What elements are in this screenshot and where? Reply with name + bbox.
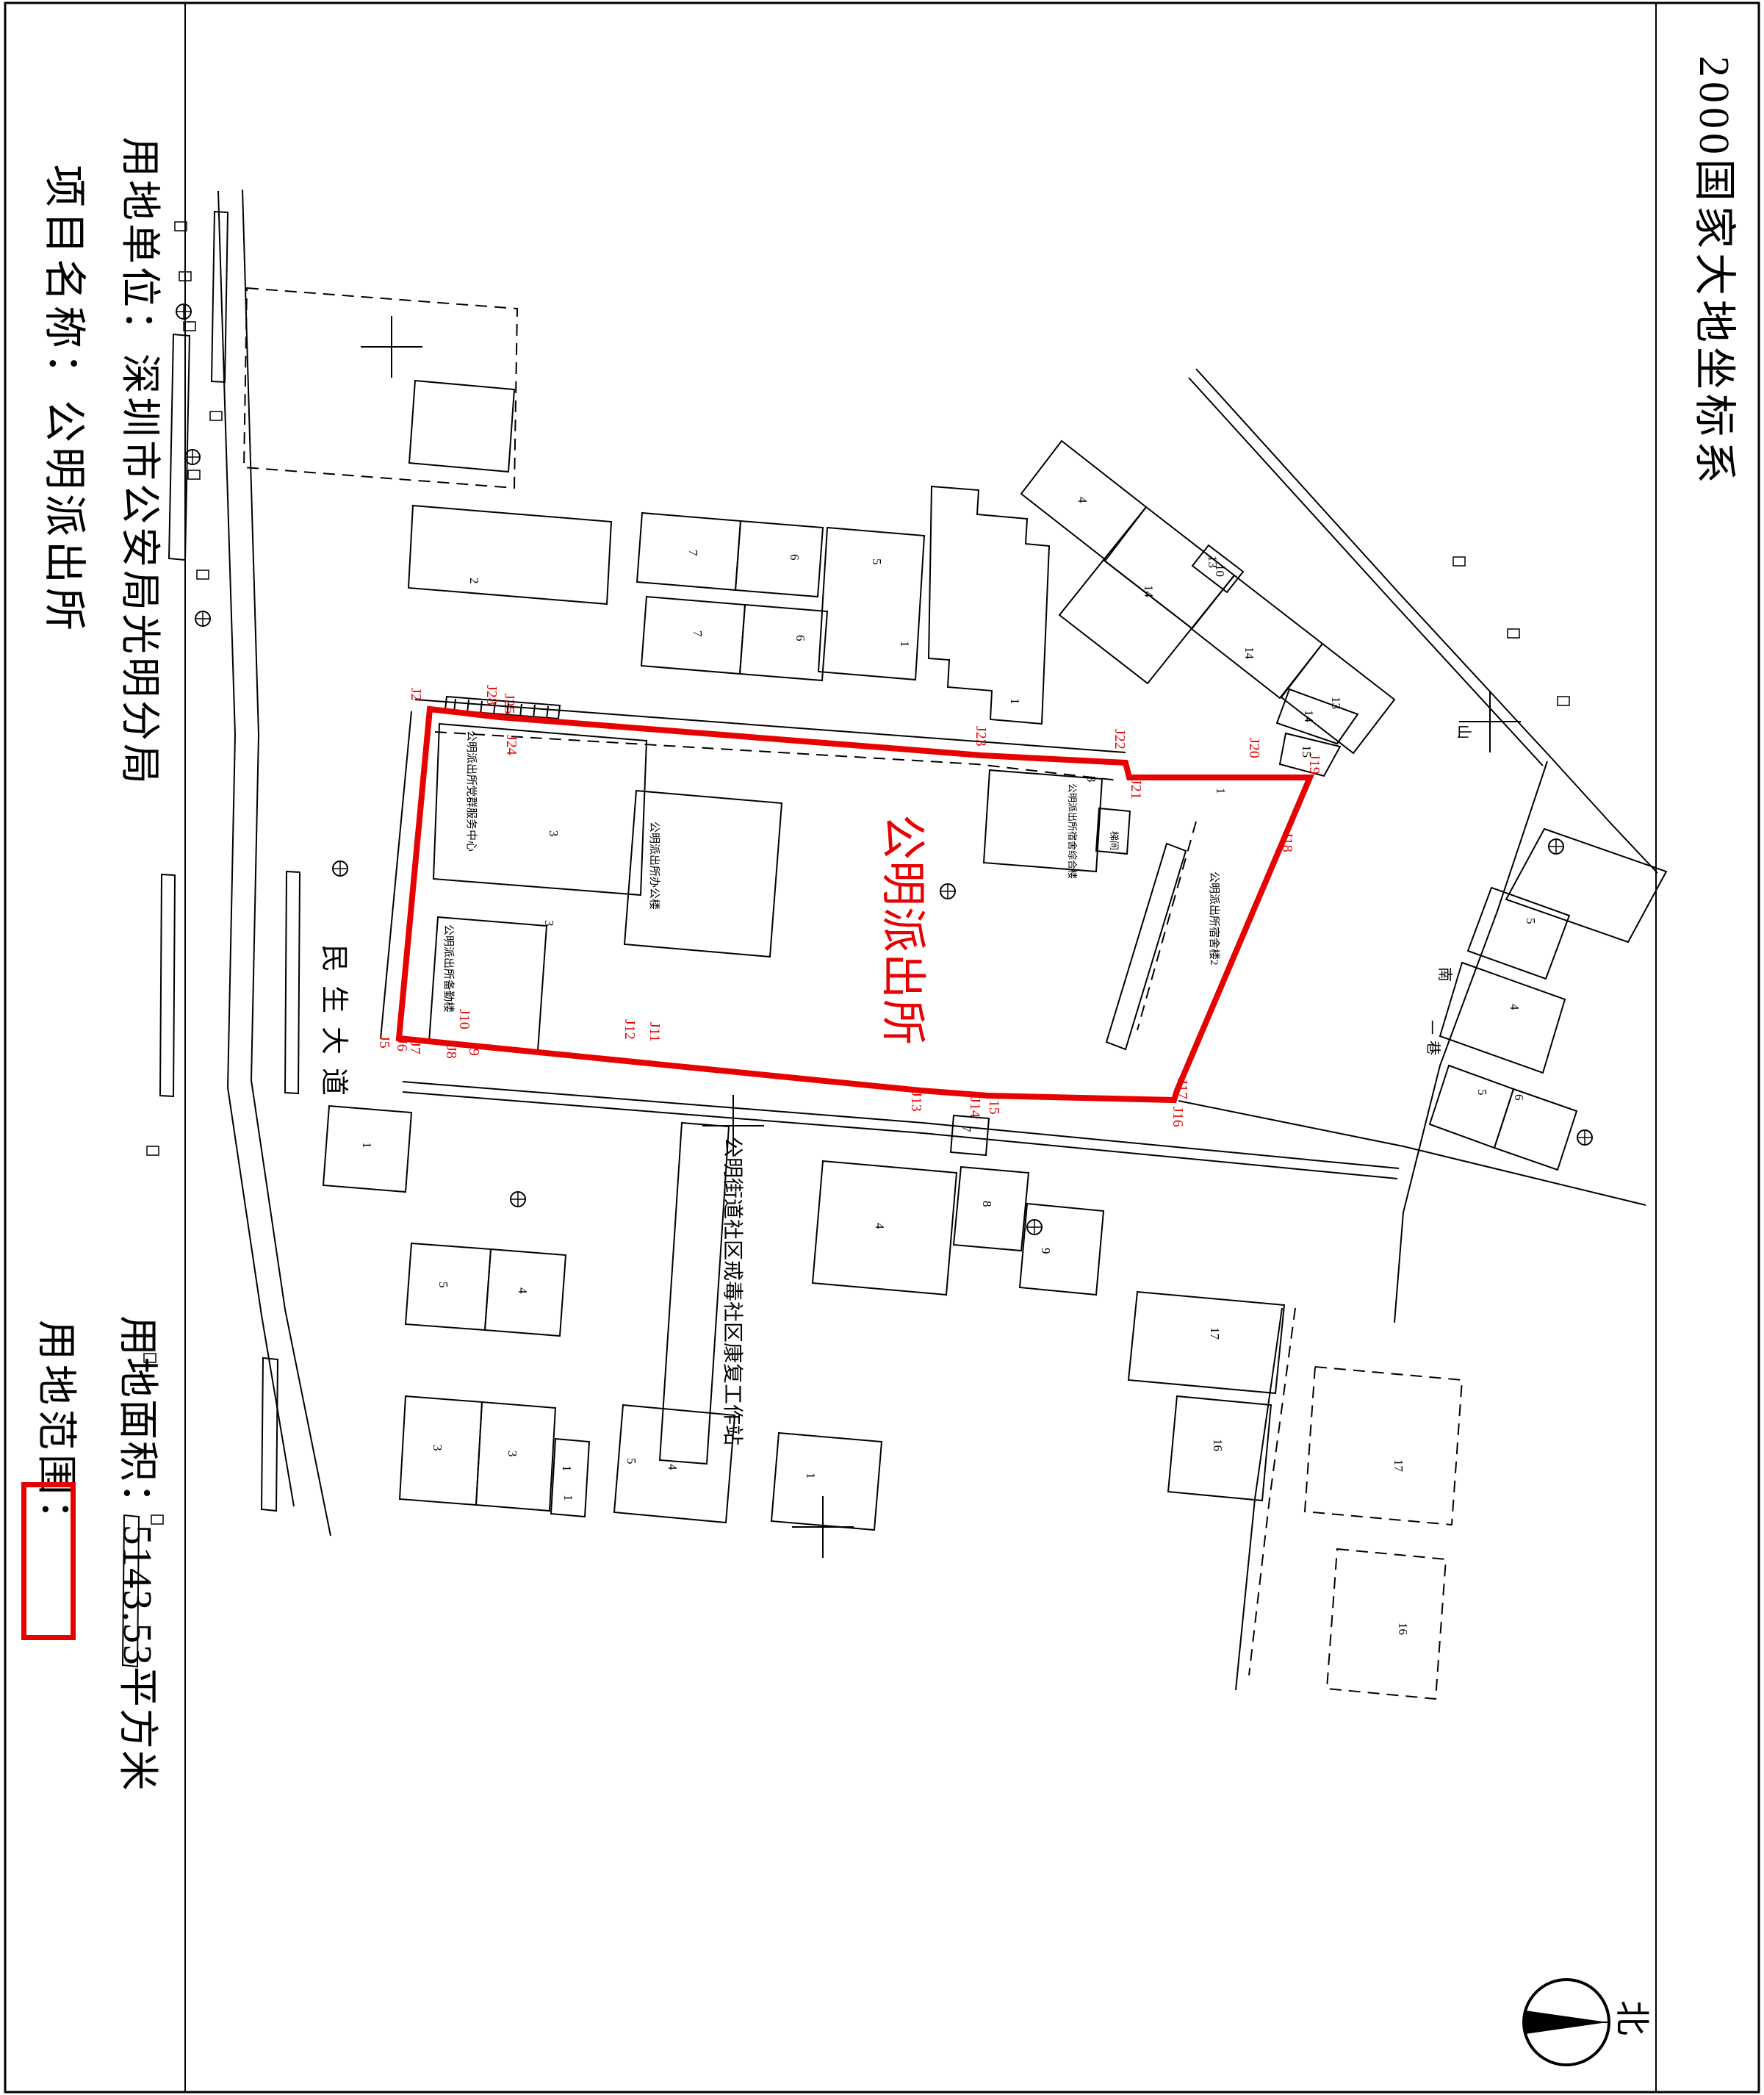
map-label: 6 [1512,1094,1526,1101]
building-outline [169,334,190,560]
map-label: 7 [686,550,700,556]
map-label-red: J17 [1174,1079,1190,1099]
map-label: 13 [1329,697,1343,709]
map-line [403,1092,1397,1179]
building-outline [818,528,924,680]
map-label-red: J22 [1112,729,1128,750]
survey-cross-icon [1459,691,1521,752]
map-label: 8 [980,1201,994,1207]
building-outline [740,605,827,680]
building-outline [160,874,175,1096]
map-label: 1 [1008,698,1022,705]
building-outline [1020,1204,1104,1295]
map-label: 17 [1208,1327,1222,1340]
map-label: 1 [1214,788,1228,794]
parcel-outline [1305,1367,1462,1525]
map-label: 16 [1211,1439,1225,1451]
map-label: 14 [1302,710,1316,723]
land-scope-legend-box [21,1482,76,1640]
building-outline [409,381,514,472]
land-user-label: 用地单位：深圳市公安局光明分局 [120,137,160,787]
survey-cross-icon [792,1496,854,1558]
street-furniture-mark [197,570,209,579]
map-label: 7 [691,630,705,637]
building-outline [984,770,1102,872]
map-label: 6 [793,635,807,642]
map-label: 公明派出所备勤楼 [442,924,455,1013]
map-label: 1 [898,641,912,647]
map-label: 巷 [1425,1041,1441,1055]
map-label: 5 [870,558,884,565]
north-arrow-pointer-icon [1525,2010,1608,2034]
map-label-red: J14 [967,1097,983,1118]
map-label-red: J21 [1128,779,1144,799]
map-label-red: J20 [1246,738,1262,758]
map-label: 梯间 [1109,831,1120,850]
map-label-red: J15 [986,1094,1002,1115]
site-plan-map: 公明派出所J2J28J25J24J23J22J21J20J19J18J17J16… [0,0,1764,2095]
street-furniture-mark [188,470,200,479]
building-outline [323,1106,411,1192]
map-line [1137,822,1196,1030]
map-label-red: J10 [456,1009,472,1029]
map-label-red: J18 [1279,832,1295,852]
coordinate-system-label: 2000国家大地坐标系 [1693,56,1735,488]
building-outline [551,1439,589,1517]
map-label: 6 [788,554,802,561]
map-label: 16 [1396,1623,1410,1635]
map-label: 1 [561,1495,575,1501]
building-outline [262,1358,278,1511]
building-outline [285,872,300,1093]
building-outline [1192,575,1322,698]
building-outline [1468,888,1569,979]
building-outline [951,1115,989,1155]
map-line [242,190,331,1536]
street-furniture-mark [1453,557,1465,566]
map-label: 3 [505,1451,519,1457]
map-label: 1 [560,1465,574,1472]
building-outline [954,1167,1029,1251]
map-label: 1 [360,1142,374,1149]
map-label: 4 [1508,1004,1522,1010]
map-label-red: J23 [973,726,989,747]
north-arrow [1524,1980,1609,2065]
map-line [381,711,411,1039]
map-line [403,1082,1399,1168]
building-outline [1277,689,1358,744]
street-furniture-mark [1558,697,1569,705]
map-label: 公明街道社区戒毒社区康复工作站 [721,1137,744,1445]
map-line [533,705,535,718]
map-label: 14 [1142,585,1156,598]
map-label: 9 [1039,1248,1053,1254]
map-label-red: J8 [443,1046,459,1059]
north-label: 北 [1613,2000,1649,2035]
map-label: 5 [436,1282,450,1288]
map-label-red: J12 [622,1019,638,1040]
street-furniture-mark [1508,629,1519,638]
map-label-red: J9 [466,1043,482,1056]
map-label: 5 [1524,918,1538,924]
building-outline [1494,1089,1577,1170]
map-label: 1 [804,1473,818,1479]
building-outline [929,486,1049,724]
map-label-red: J16 [1170,1107,1186,1127]
sheet-border [5,3,1759,2092]
map-label: 10 [1213,564,1227,577]
map-label: 公明派出所办公楼 [648,822,660,910]
map-label-red: J25 [501,694,517,714]
map-label: 4 [516,1287,530,1294]
building-outline [1506,829,1666,942]
map-label: 山 [1455,725,1472,739]
parcel-outline [1327,1549,1446,1699]
map-label: 17 [1392,1459,1405,1473]
map-content-layer: 公明派出所J2J28J25J24J23J22J21J20J19J18J17J16… [123,190,1666,1699]
map-label: 5 [624,1458,638,1465]
land-area-label: 用地面积：5143.53平方米 [118,1315,158,1792]
map-label: 南 [1436,967,1453,982]
map-label: 公明派出所宿舍综合楼 [1067,783,1078,879]
map-label: 4 [666,1464,680,1470]
building-outline [1430,1066,1513,1148]
street-furniture-mark [210,412,222,420]
map-label-red: J5 [376,1035,392,1049]
map-label: 4 [1076,497,1090,503]
map-label: 4 [873,1223,887,1229]
building-outline [1128,1292,1284,1393]
map-label: 一 [1423,1020,1439,1035]
survey-cross-icon [361,316,422,378]
map-label-red: J2 [408,688,424,701]
map-label: 3 [547,830,561,837]
street-furniture-mark [147,1146,159,1155]
map-label: 15 [1300,745,1314,758]
map-label: 公明派出所党群服务中心 [465,730,478,852]
map-label: 2 [467,578,481,584]
map-line [1552,758,1657,873]
map-label: 5 [1475,1089,1489,1096]
parcel-outline [244,288,517,488]
map-line [1196,369,1552,758]
building-outline [408,506,611,604]
map-label-red: J13 [908,1091,924,1112]
survey-drawing-sheet: 公明派出所J2J28J25J24J23J22J21J20J19J18J17J16… [0,0,1764,2095]
map-label-red: J11 [647,1022,663,1042]
map-label: 14 [1242,647,1256,660]
map-label-red: J6 [394,1038,410,1052]
map-label: 民生大道 [318,944,349,1109]
map-label-red: J24 [503,735,519,755]
building-outline [735,521,823,597]
building-outline [1059,560,1192,683]
building-outline [771,1433,882,1530]
map-label: 3 [1084,776,1098,783]
map-label: 7 [960,1126,973,1132]
map-line [1394,761,1547,1323]
map-label-red: 公明派出所 [877,814,927,1046]
map-label: 3 [431,1445,444,1451]
building-outline [660,1123,729,1464]
map-label: 3 [542,920,556,927]
project-name-label: 项目名称：公明派出所 [43,165,85,635]
map-label-red: J28 [483,685,500,705]
building-outline [1106,844,1186,1049]
map-label: 公明派出所宿舍楼2 [1208,872,1220,966]
